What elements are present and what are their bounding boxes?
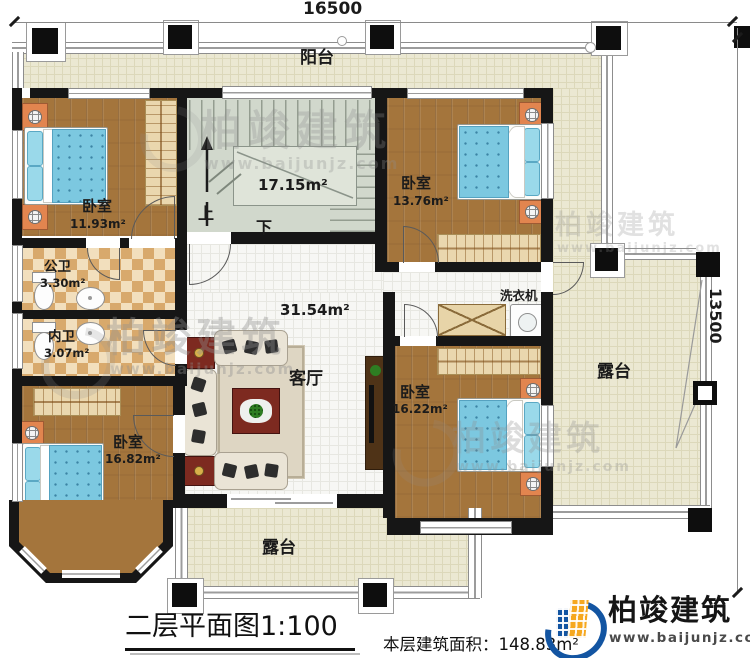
dim-top: 16500 — [303, 1, 362, 18]
room-label-terrace-right: 露台 — [597, 364, 631, 381]
room-area: 16.82m² — [105, 453, 161, 465]
bed-pillow — [27, 131, 43, 166]
watermark-url: www.baijunjz.com — [557, 242, 722, 255]
stair-down: 下 — [256, 220, 272, 236]
side-table — [183, 456, 215, 486]
brand-icon — [542, 592, 604, 652]
dim-right: 13500 — [707, 288, 723, 344]
stair-up: 上 — [198, 206, 214, 222]
bed-mattress — [459, 126, 509, 198]
room-label: 内卫 — [48, 331, 75, 345]
window — [541, 123, 554, 199]
room-label: 卧室 — [82, 199, 112, 214]
window — [420, 521, 512, 534]
watermark-name: 柏竣建筑 — [555, 212, 679, 239]
bed-pillow — [524, 128, 540, 162]
window — [68, 88, 150, 99]
column — [172, 583, 197, 607]
window — [407, 88, 524, 99]
room-label: 卧室 — [113, 435, 143, 450]
door-opening — [399, 262, 435, 272]
door-opening — [173, 415, 185, 453]
nightstand — [22, 204, 48, 230]
floor-area-label: 本层建筑面积： — [383, 635, 499, 654]
column — [32, 28, 58, 54]
watermark-url: www.baijunjz.com — [204, 156, 399, 172]
dim-line-top — [14, 22, 737, 23]
column — [596, 26, 621, 50]
room-label: 公卫 — [44, 261, 71, 275]
bed-pillow — [27, 166, 43, 201]
window — [12, 313, 23, 369]
brand-logo: 柏竣建筑 www.baijunjz.com — [540, 588, 750, 656]
balcony-railing-left — [12, 52, 24, 88]
room-label-balcony: 阳台 — [300, 50, 334, 67]
watermark-url: www.baijunjz.com — [456, 460, 631, 474]
sliding-door — [227, 494, 337, 508]
room-area: 3.30m² — [40, 278, 85, 290]
terrace-gate — [693, 381, 717, 405]
sofa-bottom — [214, 452, 288, 490]
room-label-terrace-bottom: 露台 — [262, 540, 296, 557]
watermark-name: 柏竣建筑 — [106, 318, 286, 358]
window — [12, 245, 23, 302]
bed-pillow — [25, 447, 41, 481]
title-underline-shadow — [130, 653, 360, 655]
plan-title: 二层平面图1:100 — [125, 613, 338, 640]
door-opening — [129, 238, 175, 248]
room-label: 客厅 — [289, 371, 323, 388]
brand-url: www.baijunjz.com — [609, 632, 750, 646]
room-area: 31.54m² — [280, 303, 350, 318]
column — [168, 25, 192, 49]
washing-machine — [510, 304, 544, 338]
bed-mattress — [52, 129, 106, 203]
tv — [369, 385, 374, 443]
storage-cabinet — [438, 304, 506, 336]
room-area: 13.76m² — [393, 195, 449, 207]
watermark-name: 柏竣建筑 — [452, 422, 604, 456]
nightstand — [20, 421, 44, 445]
survey-dot — [585, 42, 596, 53]
terrace-bottom-railing-south — [175, 586, 480, 599]
washing-machine-drum — [518, 313, 537, 332]
room-area: 11.93m² — [70, 218, 126, 230]
bay-window — [6, 500, 182, 610]
sofa-left — [183, 369, 217, 456]
coffee-table — [232, 388, 280, 434]
watermark-url: www.baijunjz.com — [110, 362, 295, 377]
room-label: 洗衣机 — [500, 290, 538, 303]
door-opening — [541, 262, 553, 292]
title-underline — [125, 648, 355, 651]
room-label: 卧室 — [401, 176, 431, 191]
survey-dot — [337, 36, 347, 46]
wardrobe — [437, 234, 541, 263]
wardrobe — [437, 348, 541, 375]
plant — [249, 404, 263, 418]
room-area: 3.07m² — [44, 348, 89, 360]
door-opening — [400, 336, 436, 346]
brand-name: 柏竣建筑 — [608, 596, 732, 625]
sink — [76, 287, 105, 310]
room-label: 卧室 — [400, 385, 430, 400]
window — [12, 130, 23, 199]
plant — [370, 365, 381, 376]
stair-area: 17.15m² — [258, 178, 328, 193]
column — [363, 583, 387, 607]
dim-line-right — [737, 28, 738, 594]
column — [370, 25, 394, 49]
bed-pillow — [524, 162, 540, 196]
column — [688, 508, 712, 532]
floor-plan: 柏竣建筑 www.baijunjz.com 柏竣建筑 www.baijunjz.… — [0, 0, 750, 658]
room-area: 16.22m² — [392, 403, 448, 415]
door-opening — [86, 238, 120, 248]
watermark-name: 柏竣建筑 — [200, 110, 392, 152]
window — [12, 443, 23, 502]
